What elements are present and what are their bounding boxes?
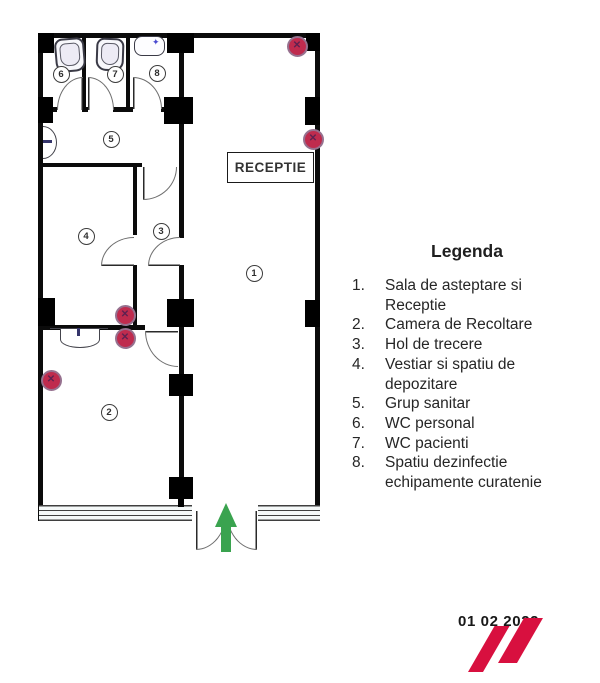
room-label-7: 7 — [107, 66, 124, 83]
entrance-arrow-stem — [221, 526, 231, 552]
sink-icon — [60, 329, 100, 348]
door-vestiar — [101, 237, 134, 266]
pillar — [167, 33, 194, 53]
pillar — [306, 33, 320, 51]
legend-title: Legenda — [352, 241, 582, 262]
legend-item-text: Vestiar si spatiu de depozitare — [385, 355, 570, 394]
door-spatiu-dezinfectie — [133, 77, 162, 109]
pillar — [305, 97, 320, 125]
sink-icon — [43, 126, 57, 159]
legend-item-text: WC pacienti — [385, 434, 570, 454]
door-wc-pacienti — [88, 77, 114, 110]
x-circle-marker: ✕ — [115, 328, 136, 349]
wall-room5-bottom — [38, 163, 142, 167]
room-label-6: 6 — [53, 66, 70, 83]
entrance-arrow-icon — [215, 503, 237, 527]
logo-bar-left — [468, 626, 510, 672]
wall-center-upper — [179, 33, 184, 238]
x-circle-marker: ✕ — [115, 305, 136, 326]
legend-item-text: WC personal — [385, 414, 570, 434]
legend-item-number: 8. — [352, 453, 385, 492]
legend-item-number: 6. — [352, 414, 385, 434]
legend-list: 1. Sala de asteptare si Receptie 2. Came… — [352, 276, 582, 493]
pillar-stem — [178, 499, 184, 507]
room-label-2: 2 — [101, 404, 118, 421]
door-grup-sanitar — [143, 167, 177, 200]
receptie-label-box: RECEPTIE — [227, 152, 314, 183]
pillar — [169, 374, 193, 396]
legend-item-number: 7. — [352, 434, 385, 454]
legend: Legenda 1. Sala de asteptare si Receptie… — [352, 241, 582, 493]
logo-bar-right — [498, 618, 543, 663]
pillar — [38, 33, 54, 53]
faucet-icon: ✦ — [152, 38, 160, 47]
x-circle-marker: ✕ — [303, 129, 324, 150]
sink-icon — [134, 36, 165, 56]
pillar — [167, 299, 194, 327]
room-label-8: 8 — [149, 65, 166, 82]
faucet-tick — [77, 328, 80, 336]
pillar — [38, 298, 55, 326]
window-band-right — [258, 505, 320, 521]
x-circle-marker: ✕ — [41, 370, 62, 391]
legend-item-text: Hol de trecere — [385, 335, 570, 355]
pillar — [164, 97, 193, 124]
receptie-label: RECEPTIE — [235, 160, 307, 175]
legend-item-text: Sala de asteptare si Receptie — [385, 276, 570, 315]
room-label-1: 1 — [246, 265, 263, 282]
faucet-tick — [43, 140, 52, 143]
legend-item-text: Spatiu dezinfectie echipamente curatenie — [385, 453, 570, 492]
wall-divider-4-3-upper — [133, 167, 137, 235]
room-label-3: 3 — [153, 223, 170, 240]
wall-wc-bottom-c — [113, 107, 133, 112]
legend-item-text: Grup sanitar — [385, 394, 570, 414]
room-label-4: 4 — [78, 228, 95, 245]
wall-divider-wc7-8 — [126, 38, 130, 110]
legend-item-number: 3. — [352, 335, 385, 355]
legend-item-number: 2. — [352, 315, 385, 335]
floor-plan-page: ✦ 1 2 3 4 5 6 7 8 ✕ ✕ ✕ ✕ ✕ RECEPTIE Leg… — [0, 0, 600, 683]
pillar — [169, 477, 193, 499]
window-band-left — [39, 505, 192, 521]
pillar — [38, 97, 53, 123]
door-hol-receptie — [148, 237, 180, 266]
legend-item-number: 1. — [352, 276, 385, 315]
pillar — [305, 300, 320, 327]
room-label-5: 5 — [103, 131, 120, 148]
door-camera-recoltare — [145, 331, 178, 367]
legend-item-text: Camera de Recoltare — [385, 315, 570, 335]
legend-item-number: 5. — [352, 394, 385, 414]
legend-item-number: 4. — [352, 355, 385, 394]
company-logo-icon — [460, 610, 555, 680]
x-circle-marker: ✕ — [287, 36, 308, 57]
